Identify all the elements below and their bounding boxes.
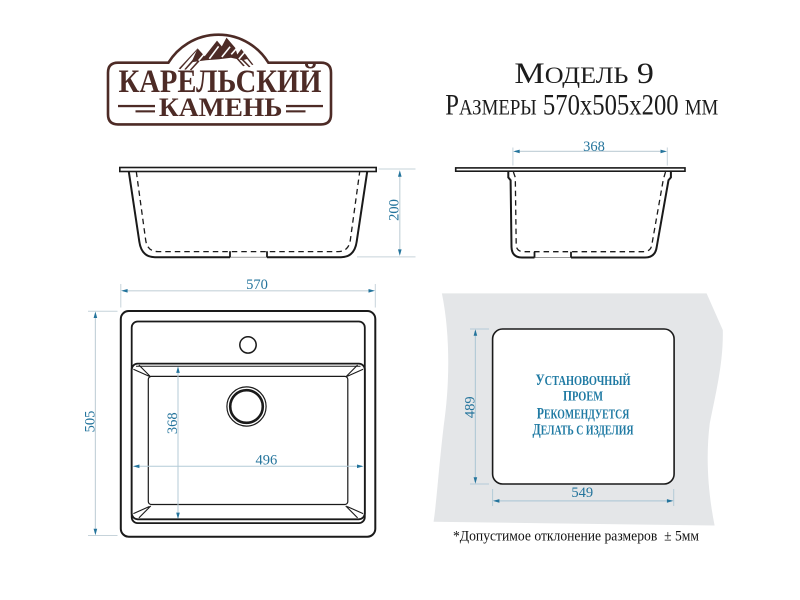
- svg-text:570: 570: [246, 277, 268, 293]
- svg-text:489: 489: [463, 396, 479, 418]
- svg-text:505: 505: [82, 411, 98, 433]
- svg-text:МОДЕЛЬ 9: МОДЕЛЬ 9: [514, 57, 654, 90]
- svg-text:ДЕЛАТЬ С ИЗДЕЛИЯ: ДЕЛАТЬ С ИЗДЕЛИЯ: [533, 421, 634, 439]
- svg-text:*Допустимое отклонение размеро: *Допустимое отклонение размеров ± 5мм: [453, 529, 699, 545]
- svg-text:368: 368: [583, 139, 605, 155]
- svg-text:200: 200: [387, 199, 403, 221]
- svg-text:ПРОЕМ: ПРОЕМ: [563, 389, 603, 405]
- svg-text:368: 368: [165, 412, 181, 434]
- svg-text:КАМЕНЬ: КАМЕНЬ: [159, 92, 283, 122]
- svg-text:УСТАНОВОЧНЫЙ: УСТАНОВОЧНЫЙ: [536, 371, 631, 389]
- svg-text:РЕКОМЕНДУЕТСЯ: РЕКОМЕНДУЕТСЯ: [537, 404, 630, 422]
- svg-text:РАЗМЕРЫ 570х505х200 ММ: РАЗМЕРЫ 570х505х200 ММ: [445, 90, 718, 122]
- svg-text:496: 496: [256, 453, 278, 469]
- svg-text:549: 549: [571, 485, 593, 501]
